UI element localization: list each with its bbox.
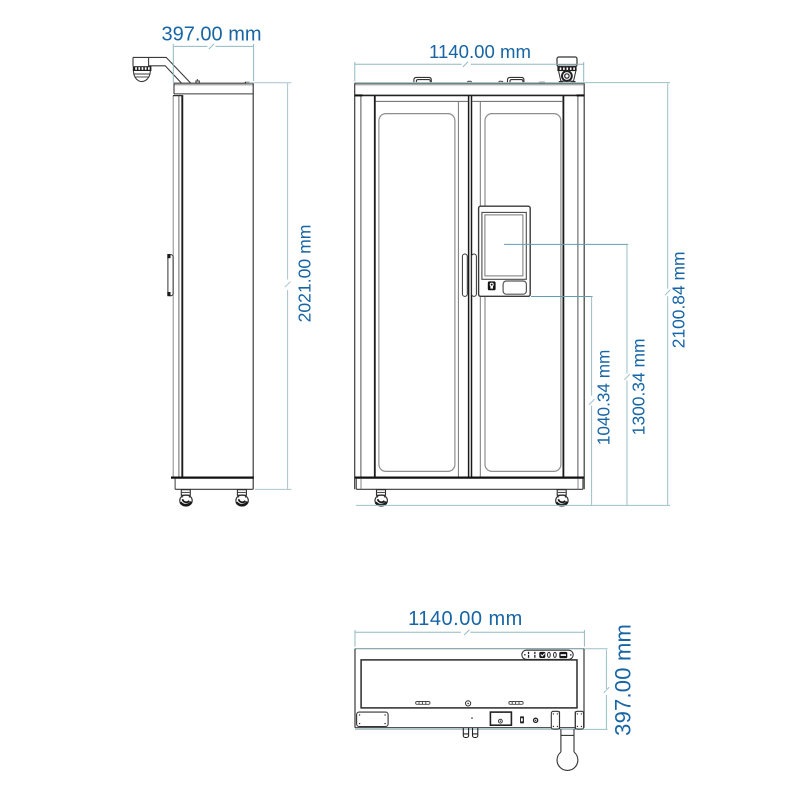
svg-text:1140.00 mm: 1140.00 mm xyxy=(429,41,531,62)
svg-text:1040.34 mm: 1040.34 mm xyxy=(594,350,614,446)
svg-text:1140.00 mm: 1140.00 mm xyxy=(408,608,523,630)
svg-text:397.00 mm: 397.00 mm xyxy=(161,23,261,45)
svg-text:397.00 mm: 397.00 mm xyxy=(611,624,636,736)
svg-text:2100.84 mm: 2100.84 mm xyxy=(669,252,689,349)
svg-text:2021.00 mm: 2021.00 mm xyxy=(295,225,315,323)
svg-text:1300.34 mm: 1300.34 mm xyxy=(629,339,649,436)
